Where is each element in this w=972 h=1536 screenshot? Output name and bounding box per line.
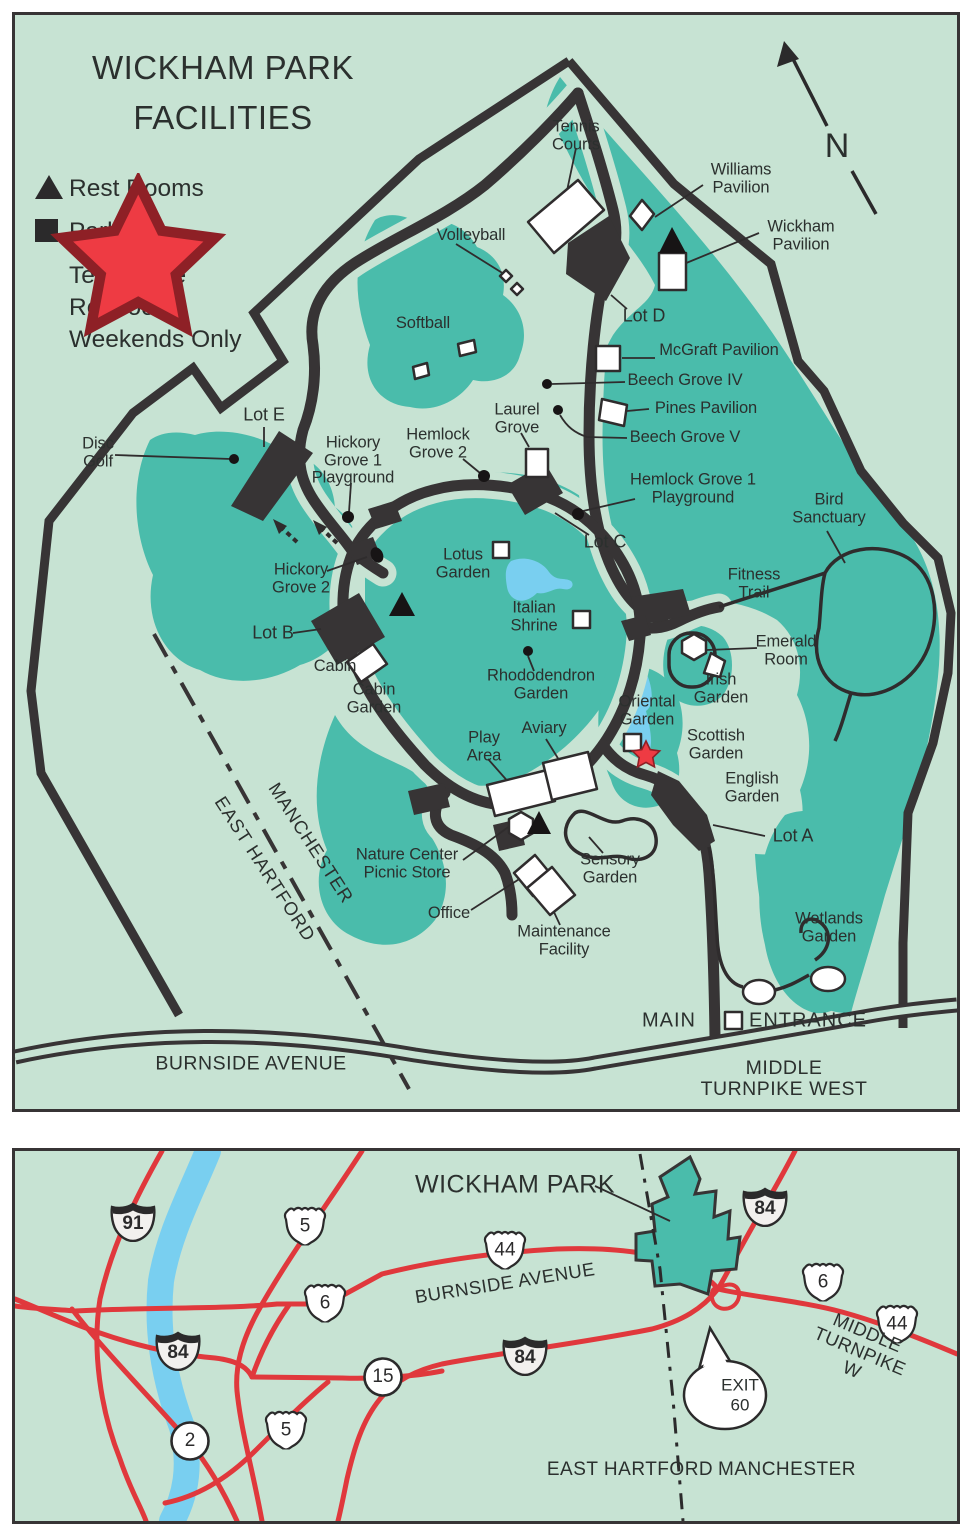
facilities-map-panel: WICKHAM PARK FACILITIES Rest Rooms Parki… <box>12 12 960 1112</box>
north-arrow <box>777 41 876 214</box>
wickham-pavilion-building <box>659 253 686 290</box>
sensory-garden-outline <box>566 811 657 859</box>
page-root: { "colors": { "background_mint": "#c7e3d… <box>0 0 972 1536</box>
wetlands-pond-2 <box>811 967 845 991</box>
road-burnside <box>15 1249 718 1311</box>
road-middle-turnpike <box>718 1289 957 1354</box>
emerald-room-building-1 <box>682 634 706 660</box>
oriental-garden-marker <box>624 734 641 751</box>
river <box>160 1151 208 1521</box>
road-route5 <box>237 1151 362 1521</box>
exit-bubble <box>684 1328 766 1429</box>
area-map-svg <box>15 1151 957 1521</box>
italian-shrine-marker <box>573 611 590 628</box>
wetlands-pond-1 <box>743 980 775 1004</box>
pines-pavilion-building <box>599 399 627 426</box>
nature-center-building <box>509 812 533 840</box>
road-i84-west <box>338 1289 718 1521</box>
area-map-panel: 9184848454465644152 WICKHAM PARKBURNSIDE… <box>12 1148 960 1524</box>
perimeter-roads <box>15 1005 957 1067</box>
aviary-building <box>543 752 597 800</box>
laurel-grove-building <box>526 449 548 477</box>
facilities-map-svg <box>15 15 957 1109</box>
lotus-garden-marker <box>493 542 509 558</box>
main-entrance-marker <box>725 1012 742 1029</box>
mcgraft-pavilion-building <box>596 346 620 371</box>
